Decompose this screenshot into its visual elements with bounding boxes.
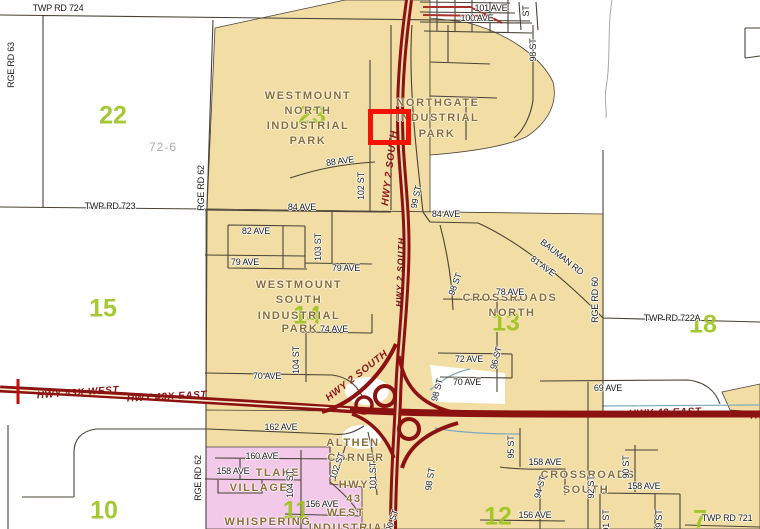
label-158-ave: 158 AVE: [628, 481, 661, 491]
label-158-ave: 158 AVE: [529, 457, 562, 467]
map-canvas[interactable]: 222315141318101112772-6WESTMOUNTNORTHIND…: [0, 0, 760, 529]
label-82-ave: 82 AVE: [242, 226, 270, 236]
label-98-st: 98 ST: [423, 467, 437, 491]
label-102-st: 102 ST: [356, 172, 366, 200]
label-81-ave: 81 AVE: [529, 254, 558, 279]
label-70-ave: 70 AVE: [253, 371, 281, 381]
label-22: 22: [99, 102, 127, 131]
label-70-ave: 70 AVE: [453, 377, 481, 387]
label-160-ave: 160 AVE: [246, 451, 279, 461]
label-hwy-2-south: HWY 2 SOUTH: [324, 348, 391, 403]
label-72-6: 72-6: [149, 140, 177, 154]
label-104-st: 104 ST: [285, 470, 295, 498]
label-78-ave: 78 AVE: [496, 287, 524, 297]
label-park: PARK: [419, 128, 456, 140]
label-12: 12: [484, 503, 512, 529]
label-hwy-2-south: HWY 2 SOUTH: [394, 237, 406, 307]
label-twp-rd-723: TWP RD 723: [85, 201, 136, 211]
label-104-st: 104 ST: [291, 346, 301, 374]
label-whispering: WHISPERING: [225, 516, 312, 528]
map-labels: 222315141318101112772-6WESTMOUNTNORTHIND…: [0, 0, 760, 529]
label-westmount: WESTMOUNT: [256, 279, 343, 291]
label-twp-rd-721: TWP RD 721: [702, 513, 753, 523]
label-100-st: 100 ST: [382, 508, 401, 529]
label-rge-rd-60: RGE RD 60: [590, 277, 600, 323]
selection-rectangle[interactable]: [368, 109, 411, 145]
label-industrial: INDUSTRIAL: [258, 310, 341, 322]
label-north: NORTH: [284, 105, 331, 117]
label-69-ave: 69 AVE: [594, 383, 622, 393]
label-156-ave: 156 AVE: [519, 510, 552, 520]
label-158-ave: 158 AVE: [217, 466, 250, 476]
label-hwy-43x-east: HWY 43X EAST: [127, 389, 208, 404]
label-156-ave: 156 AVE: [306, 499, 339, 509]
label-72-ave: 72 AVE: [455, 354, 483, 364]
label-162-ave: 162 AVE: [265, 422, 298, 432]
label-100-ave: 100 AVE: [461, 13, 494, 23]
label-15: 15: [89, 295, 117, 324]
label-twp-rd-724: TWP RD 724: [33, 3, 84, 13]
label-westmount: WESTMOUNT: [265, 90, 352, 102]
label-10: 10: [90, 497, 118, 526]
label-101-st: 101 ST: [368, 462, 378, 490]
label-rge-rd-62: RGE RD 62: [196, 165, 206, 211]
label-95-st: 95 ST: [506, 435, 516, 458]
label-rge-rd-63: RGE RD 63: [6, 42, 16, 88]
label-74-ave: 74 AVE: [320, 324, 348, 334]
label-92-st: 92 ST: [586, 475, 596, 498]
label-94-st: 94 ST: [532, 475, 548, 500]
label-91-st: 91 ST: [601, 509, 611, 529]
label-northgate: NORTHGATE: [396, 97, 479, 109]
label-hwy-43x-west: HWY 43X WEST: [36, 385, 119, 402]
label-hwy: HWY: [339, 479, 369, 491]
label-79-ave: 79 AVE: [332, 263, 360, 273]
label-98-st: 98 ST: [528, 38, 538, 61]
label-84-ave: 84 AVE: [288, 202, 316, 212]
label-north: NORTH: [488, 307, 535, 319]
label-96-st: 96 ST: [488, 346, 504, 371]
label-twp-rd-722a: TWP RD 722A: [644, 313, 701, 323]
label-79-ave: 79 AVE: [231, 257, 259, 267]
label-98-st: 98 ST: [429, 378, 445, 403]
label-st: ST: [521, 5, 531, 16]
label-village: VILLAGE: [230, 482, 289, 494]
label-84-ave: 84 AVE: [432, 209, 460, 219]
label-103-st: 103 ST: [313, 233, 323, 261]
label-98-st: 98 ST: [446, 271, 463, 296]
label-south: SOUTH: [276, 294, 323, 306]
label-88-ave: 88 AVE: [325, 154, 354, 168]
label-industrial: INDUSTRIAL: [267, 120, 350, 132]
label-hwy-43-east: HWY 43 EAST: [628, 406, 701, 420]
label-101-ave: 101 AVE: [475, 3, 508, 13]
label-park: PARK: [290, 135, 327, 147]
label-89-st: 89 ST: [654, 509, 664, 529]
label-rge-rd-62: RGE RD 62: [193, 455, 203, 501]
label-43: 43: [346, 493, 361, 505]
label-industrial: INDUSTRIAL: [309, 522, 392, 529]
label-99-st: 99 ST: [409, 185, 424, 210]
label-althen: ALTHEN: [326, 437, 379, 449]
label-park: PARK: [282, 323, 319, 335]
label-90-st: 90 ST: [621, 455, 631, 478]
label-hwy-43-east: HWY 43 EAST: [750, 408, 760, 422]
